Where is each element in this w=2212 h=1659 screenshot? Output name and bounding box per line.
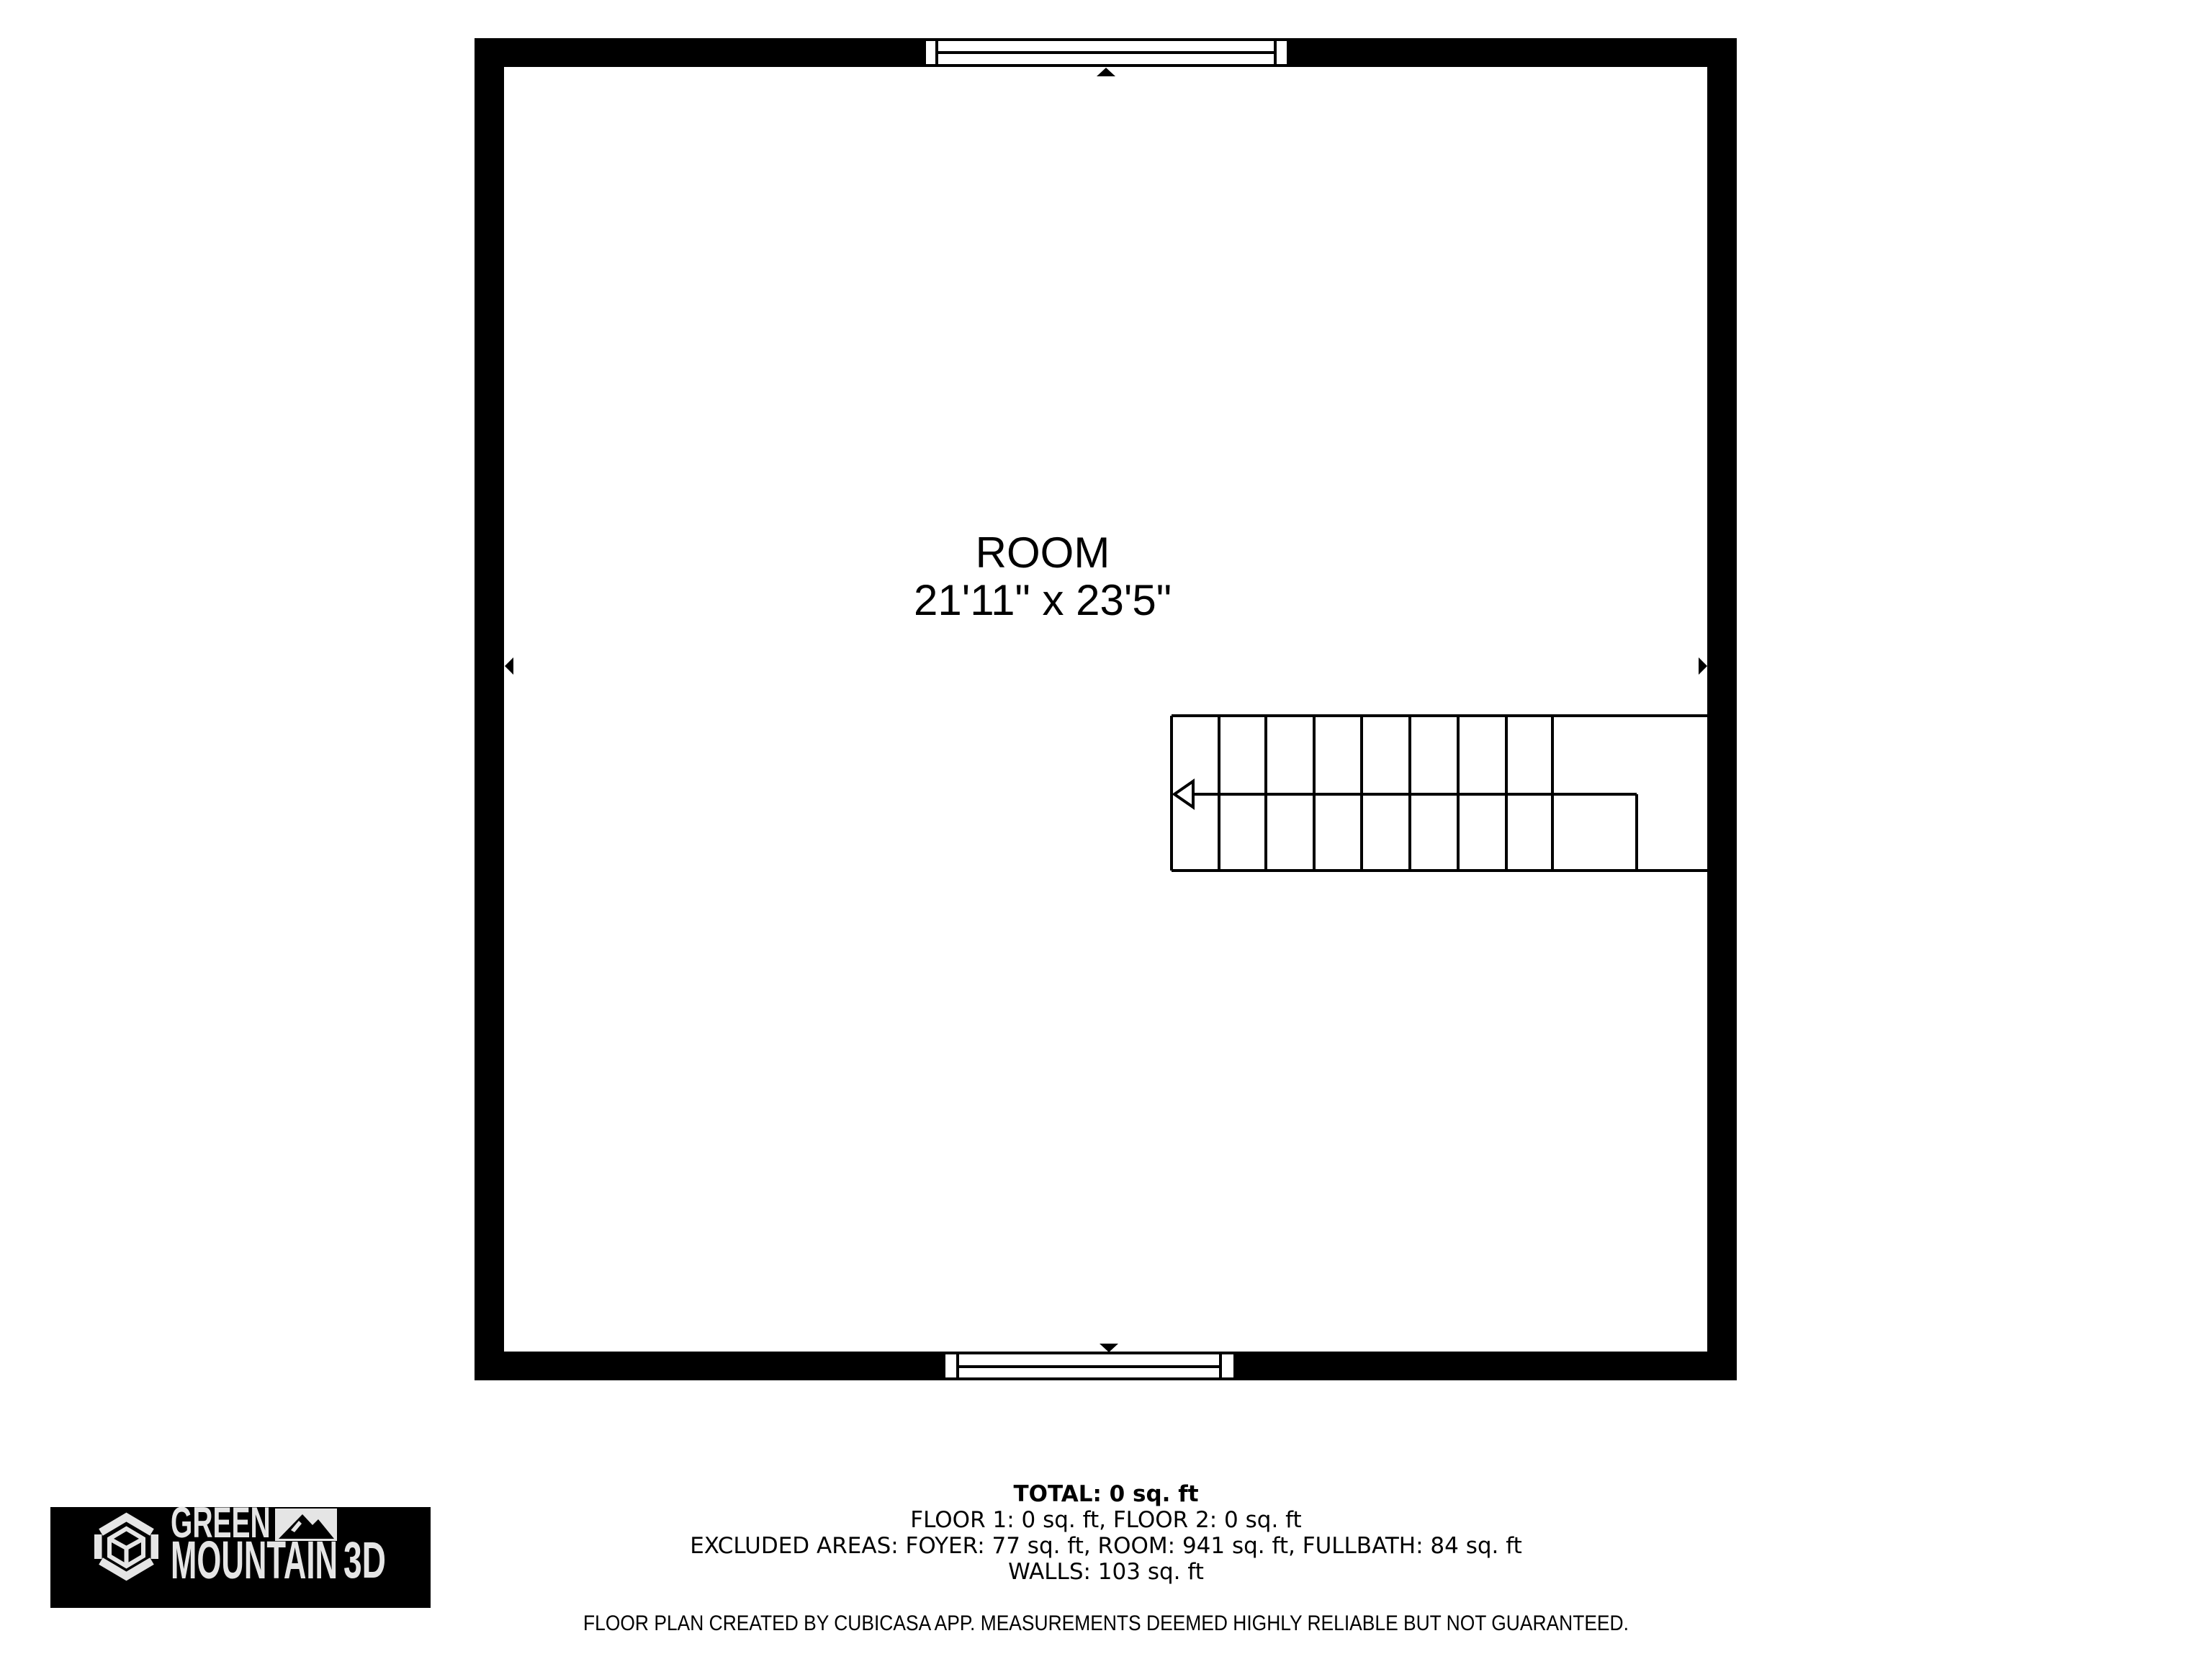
room-dimensions: 21'11" x 23'5" [914, 577, 1172, 624]
wall-marker-right-icon [1699, 657, 1707, 675]
stair-direction-line [1192, 794, 1637, 871]
window-frame-line [926, 38, 1287, 41]
stair-direction-arrowhead [1174, 781, 1193, 807]
exterior-wall-right [1707, 38, 1737, 1380]
staircase [1170, 714, 1710, 873]
room-label: ROOM 21'11" x 23'5" [914, 529, 1172, 624]
summary-total: TOTAL: 0 sq. ft [0, 1481, 2212, 1507]
hexagon-cube-icon [94, 1511, 158, 1582]
window-top [926, 38, 1287, 67]
logo-word-mountain: MOUNTAIN [171, 1534, 338, 1587]
wall-marker-bottom-icon [1100, 1344, 1118, 1352]
window-pane-divider [956, 1365, 1222, 1368]
wall-marker-left-icon [505, 657, 513, 675]
green-mountain-3d-logo: GREEN MOUNTAIN 3D [50, 1507, 431, 1608]
window-bottom [945, 1352, 1233, 1380]
floor-plan: ROOM 21'11" x 23'5" [0, 0, 2212, 1411]
logo-suffix-3d: 3D [343, 1535, 386, 1586]
window-frame-line [926, 64, 1287, 67]
window-frame-line [945, 1352, 1233, 1354]
wall-marker-top-icon [1097, 68, 1115, 76]
exterior-wall-left [475, 38, 504, 1380]
window-pane-divider [935, 51, 1277, 54]
room-name: ROOM [914, 529, 1172, 577]
window-frame-line [945, 1377, 1233, 1380]
disclaimer-text: FLOOR PLAN CREATED BY CUBICASA APP. MEAS… [132, 1611, 2079, 1636]
